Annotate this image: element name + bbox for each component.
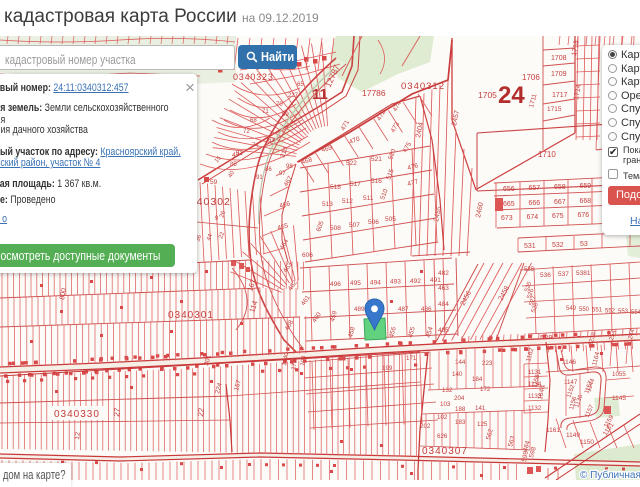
svg-text:68: 68 (250, 118, 257, 124)
svg-text:5381: 5381 (576, 270, 591, 277)
svg-text:489: 489 (354, 306, 365, 313)
svg-text:65: 65 (297, 82, 304, 88)
svg-text:495: 495 (350, 280, 361, 287)
svg-text:27: 27 (112, 407, 122, 417)
svg-text:550: 550 (579, 307, 590, 313)
svg-text:494: 494 (370, 279, 381, 286)
svg-text:1708: 1708 (551, 55, 567, 62)
svg-text:204: 204 (454, 395, 465, 402)
svg-text:531: 531 (524, 243, 536, 250)
svg-text:1055: 1055 (612, 371, 626, 378)
svg-text:1161: 1161 (546, 427, 560, 434)
svg-text:606: 606 (302, 252, 313, 259)
svg-text:22: 22 (196, 407, 206, 417)
svg-text:53: 53 (580, 241, 588, 248)
svg-text:184: 184 (472, 376, 483, 383)
svg-text:202: 202 (420, 423, 431, 430)
svg-text:536: 536 (540, 272, 551, 279)
svg-text:658: 658 (554, 184, 566, 191)
svg-text:102: 102 (437, 414, 448, 421)
svg-text:521: 521 (371, 156, 382, 163)
svg-text:659: 659 (580, 183, 592, 190)
svg-text:554: 554 (631, 310, 640, 316)
svg-text:511: 511 (363, 195, 374, 202)
svg-text:553: 553 (618, 309, 629, 315)
svg-text:493: 493 (390, 279, 401, 286)
svg-text:517: 517 (350, 181, 361, 188)
svg-text:496: 496 (330, 281, 341, 288)
svg-text:© Публичная кадастровая: © Публичная кадастровая (580, 469, 640, 480)
svg-text:103: 103 (440, 401, 451, 408)
svg-text:532: 532 (552, 242, 564, 249)
svg-text:1705: 1705 (478, 90, 497, 100)
svg-text:674: 674 (527, 214, 539, 221)
svg-text:522: 522 (346, 160, 357, 167)
svg-text:183: 183 (455, 419, 466, 426)
svg-text:626: 626 (437, 433, 448, 440)
svg-text:537: 537 (558, 271, 569, 278)
svg-text:12: 12 (74, 432, 82, 441)
svg-text:506: 506 (368, 219, 379, 226)
svg-text:1132: 1132 (528, 405, 542, 412)
svg-text:1715: 1715 (547, 106, 562, 113)
svg-text:0340323: 0340323 (233, 72, 274, 82)
svg-text:551: 551 (592, 308, 603, 314)
svg-text:71: 71 (262, 109, 269, 115)
svg-text:675: 675 (552, 213, 564, 220)
svg-text:535: 535 (524, 267, 535, 273)
svg-text:516: 516 (371, 178, 382, 185)
svg-text:0340312: 0340312 (401, 81, 445, 92)
svg-text:491: 491 (430, 277, 441, 284)
svg-text:0340330: 0340330 (54, 409, 100, 420)
svg-text:132: 132 (442, 387, 453, 394)
svg-text:141: 141 (475, 405, 486, 412)
svg-text:666: 666 (529, 200, 541, 207)
svg-text:463: 463 (438, 285, 449, 292)
svg-text:24: 24 (498, 82, 525, 109)
svg-text:656: 656 (503, 186, 515, 193)
svg-text:1710: 1710 (538, 150, 556, 159)
svg-text:70: 70 (276, 102, 283, 108)
svg-text:665: 665 (503, 201, 515, 208)
svg-text:486: 486 (421, 306, 432, 313)
svg-text:59: 59 (210, 179, 218, 186)
svg-text:1145: 1145 (612, 395, 626, 402)
svg-text:676: 676 (578, 212, 590, 219)
svg-text:552: 552 (605, 308, 616, 314)
svg-text:492: 492 (410, 278, 421, 285)
svg-text:1706: 1706 (522, 73, 540, 82)
svg-text:1709: 1709 (551, 71, 567, 78)
svg-text:513: 513 (322, 201, 333, 208)
svg-text:188: 188 (455, 406, 466, 413)
svg-text:657: 657 (529, 185, 541, 192)
svg-text:484: 484 (438, 301, 449, 308)
svg-text:1717: 1717 (552, 92, 568, 99)
svg-text:47: 47 (232, 152, 240, 159)
svg-text:512: 512 (342, 198, 353, 205)
svg-text:487: 487 (398, 306, 409, 313)
svg-text:507: 507 (349, 222, 360, 229)
svg-text:172: 172 (480, 386, 491, 393)
svg-text:125: 125 (477, 421, 488, 428)
svg-text:17786: 17786 (362, 88, 386, 98)
svg-text:549: 549 (566, 306, 577, 312)
svg-text:667: 667 (554, 199, 566, 206)
svg-text:0340301: 0340301 (168, 310, 214, 321)
svg-text:171: 171 (406, 355, 417, 362)
svg-text:505: 505 (385, 216, 396, 223)
svg-text:199: 199 (382, 365, 393, 372)
svg-text:74: 74 (252, 143, 259, 149)
svg-text:85: 85 (230, 162, 237, 168)
svg-text:72: 72 (243, 129, 250, 135)
svg-text:140: 140 (452, 371, 463, 378)
svg-text:668: 668 (580, 198, 592, 205)
svg-text:673: 673 (501, 215, 513, 222)
svg-text:508: 508 (330, 225, 341, 232)
svg-text:518: 518 (330, 184, 341, 191)
svg-text:482: 482 (438, 270, 449, 277)
